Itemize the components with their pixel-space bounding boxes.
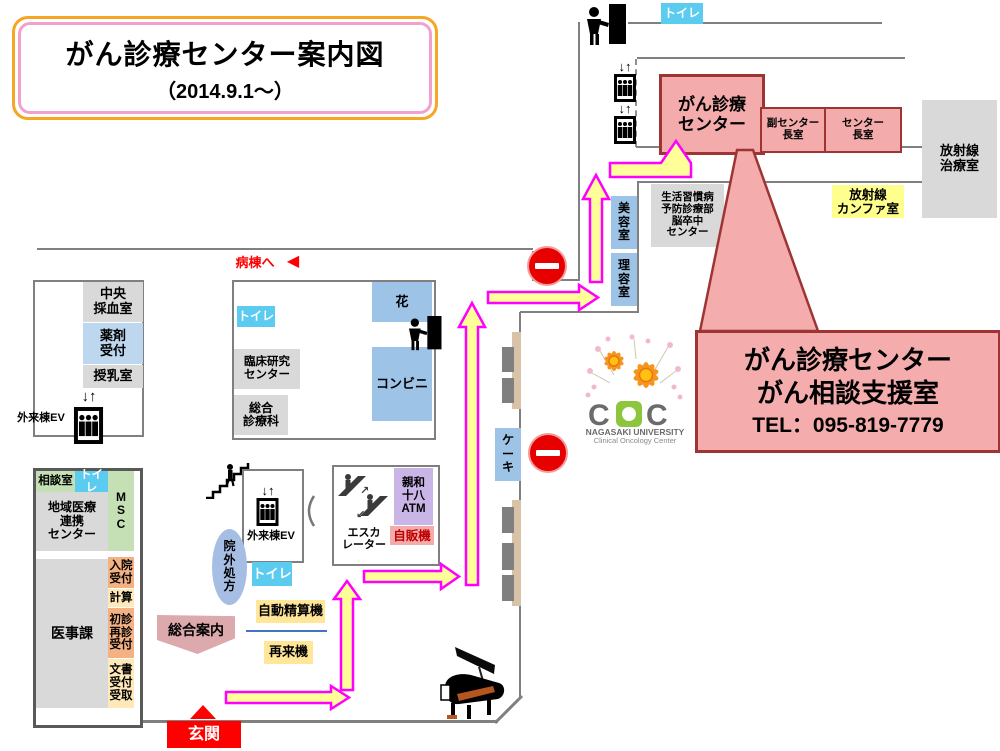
bench-seat [502, 378, 514, 403]
person-door-icon [404, 311, 444, 356]
person-door-icon [581, 2, 629, 48]
title-box-inner: がん診療センター案内図 （2014.9.1～） [18, 22, 432, 114]
elevator-arrows: ↓↑ [255, 484, 281, 499]
to-ward-label: 病棟へ [224, 255, 286, 272]
room-radiation-treatment: 放射線 治療室 [922, 100, 997, 218]
callout-line2: がん相談支援室 [757, 377, 939, 410]
callout-tel: TEL：095-819-7779 [752, 409, 943, 439]
svg-text:Clinical Oncology Center: Clinical Oncology Center [594, 436, 677, 445]
atm-label: 親和 十八 ATM [394, 468, 433, 525]
room-beauty: 美 容 室 [611, 196, 637, 249]
bench-seat [502, 543, 514, 570]
room-consultation: 相談室 [36, 471, 75, 492]
route-arrow-up-long [459, 303, 485, 585]
callout-pointer [695, 148, 825, 332]
toilet-label-center: トイレ [252, 562, 292, 586]
room-vice-director: 副センター 長室 [760, 107, 826, 153]
elevator-icon [255, 498, 280, 526]
room-regional-center: 地域医療 連携 センター [36, 492, 108, 551]
elevator-icon [614, 116, 636, 144]
route-arrow-right-1 [364, 564, 459, 589]
entrance-label: 玄関 [167, 721, 241, 748]
entrance-arrow-icon [190, 705, 216, 719]
route-arrow-up-1 [334, 581, 360, 690]
toilet-label-mid: トイレ [237, 306, 275, 327]
room-cancer-center: がん診療 センター [659, 74, 765, 155]
bench-seat [502, 575, 514, 601]
vending-label: 自販機 [390, 526, 434, 545]
wall [520, 311, 639, 313]
route-arrow-right-2 [488, 285, 598, 310]
shop-cake: ケ ー キ [495, 428, 521, 481]
room-pharmacy: 薬剤 受付 [83, 323, 143, 364]
svg-text:↙: ↙ [356, 509, 365, 521]
route-arrow-up-2 [583, 175, 609, 282]
shop-convenience: コンビニ [372, 347, 432, 421]
elevator-arrows: ↓↑ [613, 103, 637, 116]
wall [578, 22, 580, 281]
room-clinical-research: 臨床研究 センター [234, 349, 300, 389]
page-title: がん診療センター案内図 [65, 33, 384, 73]
room-medical-affairs: 医事課 [36, 559, 108, 708]
wall [637, 181, 639, 313]
auto-payment-label: 自動精算機 [256, 600, 325, 623]
title-date: （2014.9.1～） [156, 75, 294, 104]
room-director: センター 長室 [824, 107, 902, 153]
room-central-blood: 中央 採血室 [83, 282, 143, 322]
piano-image [437, 643, 507, 720]
room-radiation-conference: 放射線 カンファ室 [832, 185, 904, 218]
room-msc: M S C [108, 471, 134, 551]
escalator-icon: ↗ ↙ [336, 472, 394, 522]
room-barber: 理 容 室 [611, 253, 637, 306]
bench-seat [502, 507, 514, 533]
bench-seat [502, 347, 514, 372]
divider-line [246, 630, 327, 632]
desk-document: 文書 受付 受取 [108, 659, 134, 708]
room-nursing: 授乳室 [83, 365, 143, 388]
prescription-label: 院 外 処 方 [212, 529, 247, 605]
elevator-arrows: ↓↑ [613, 61, 637, 74]
wall [37, 248, 533, 250]
elevator-label-center: 外来棟EV [243, 529, 299, 543]
title-box: がん診療センター案内図 （2014.9.1～） [12, 16, 438, 120]
no-entry-icon [528, 433, 568, 473]
wall [637, 57, 905, 59]
no-entry-icon [527, 246, 567, 286]
toilet-label-sw: トイレ [75, 471, 108, 492]
wall [33, 435, 76, 437]
elevator-arrows: ↓↑ [74, 389, 104, 406]
revisit-machine-label: 再来機 [264, 641, 313, 664]
to-ward-arrow-icon: ◀ [284, 252, 302, 272]
coc-logo: C C NAGASAKI UNIVERSITY Clinical Oncolog… [580, 331, 690, 445]
callout-line1: がん診療センター [744, 344, 952, 377]
toilet-label-top: トイレ [661, 3, 703, 24]
desk-calculation: 計算 [108, 589, 134, 607]
escalator-label: エスカ レーター [338, 524, 390, 554]
desk-admission: 入院 受付 [108, 557, 134, 588]
room-general-clinic: 総合 診療科 [234, 395, 288, 435]
desk-first-revisit: 初診 再診 受付 [108, 608, 134, 658]
hospital-floor-map: がん診療センター案内図 （2014.9.1～） トイレ ↓↑ ↓↑ [0, 0, 1000, 751]
information-desk: 総合案内 [157, 615, 235, 654]
callout-support-room: がん診療センター がん相談支援室 TEL：095-819-7779 [695, 330, 1000, 453]
route-arrow-entrance [226, 686, 349, 709]
elevator-icon [614, 74, 636, 102]
wall [102, 435, 144, 437]
wall [636, 146, 660, 148]
elevator-icon [73, 407, 104, 444]
elevator-label-left: 外来棟EV [11, 411, 71, 426]
curve-mark [302, 494, 316, 528]
